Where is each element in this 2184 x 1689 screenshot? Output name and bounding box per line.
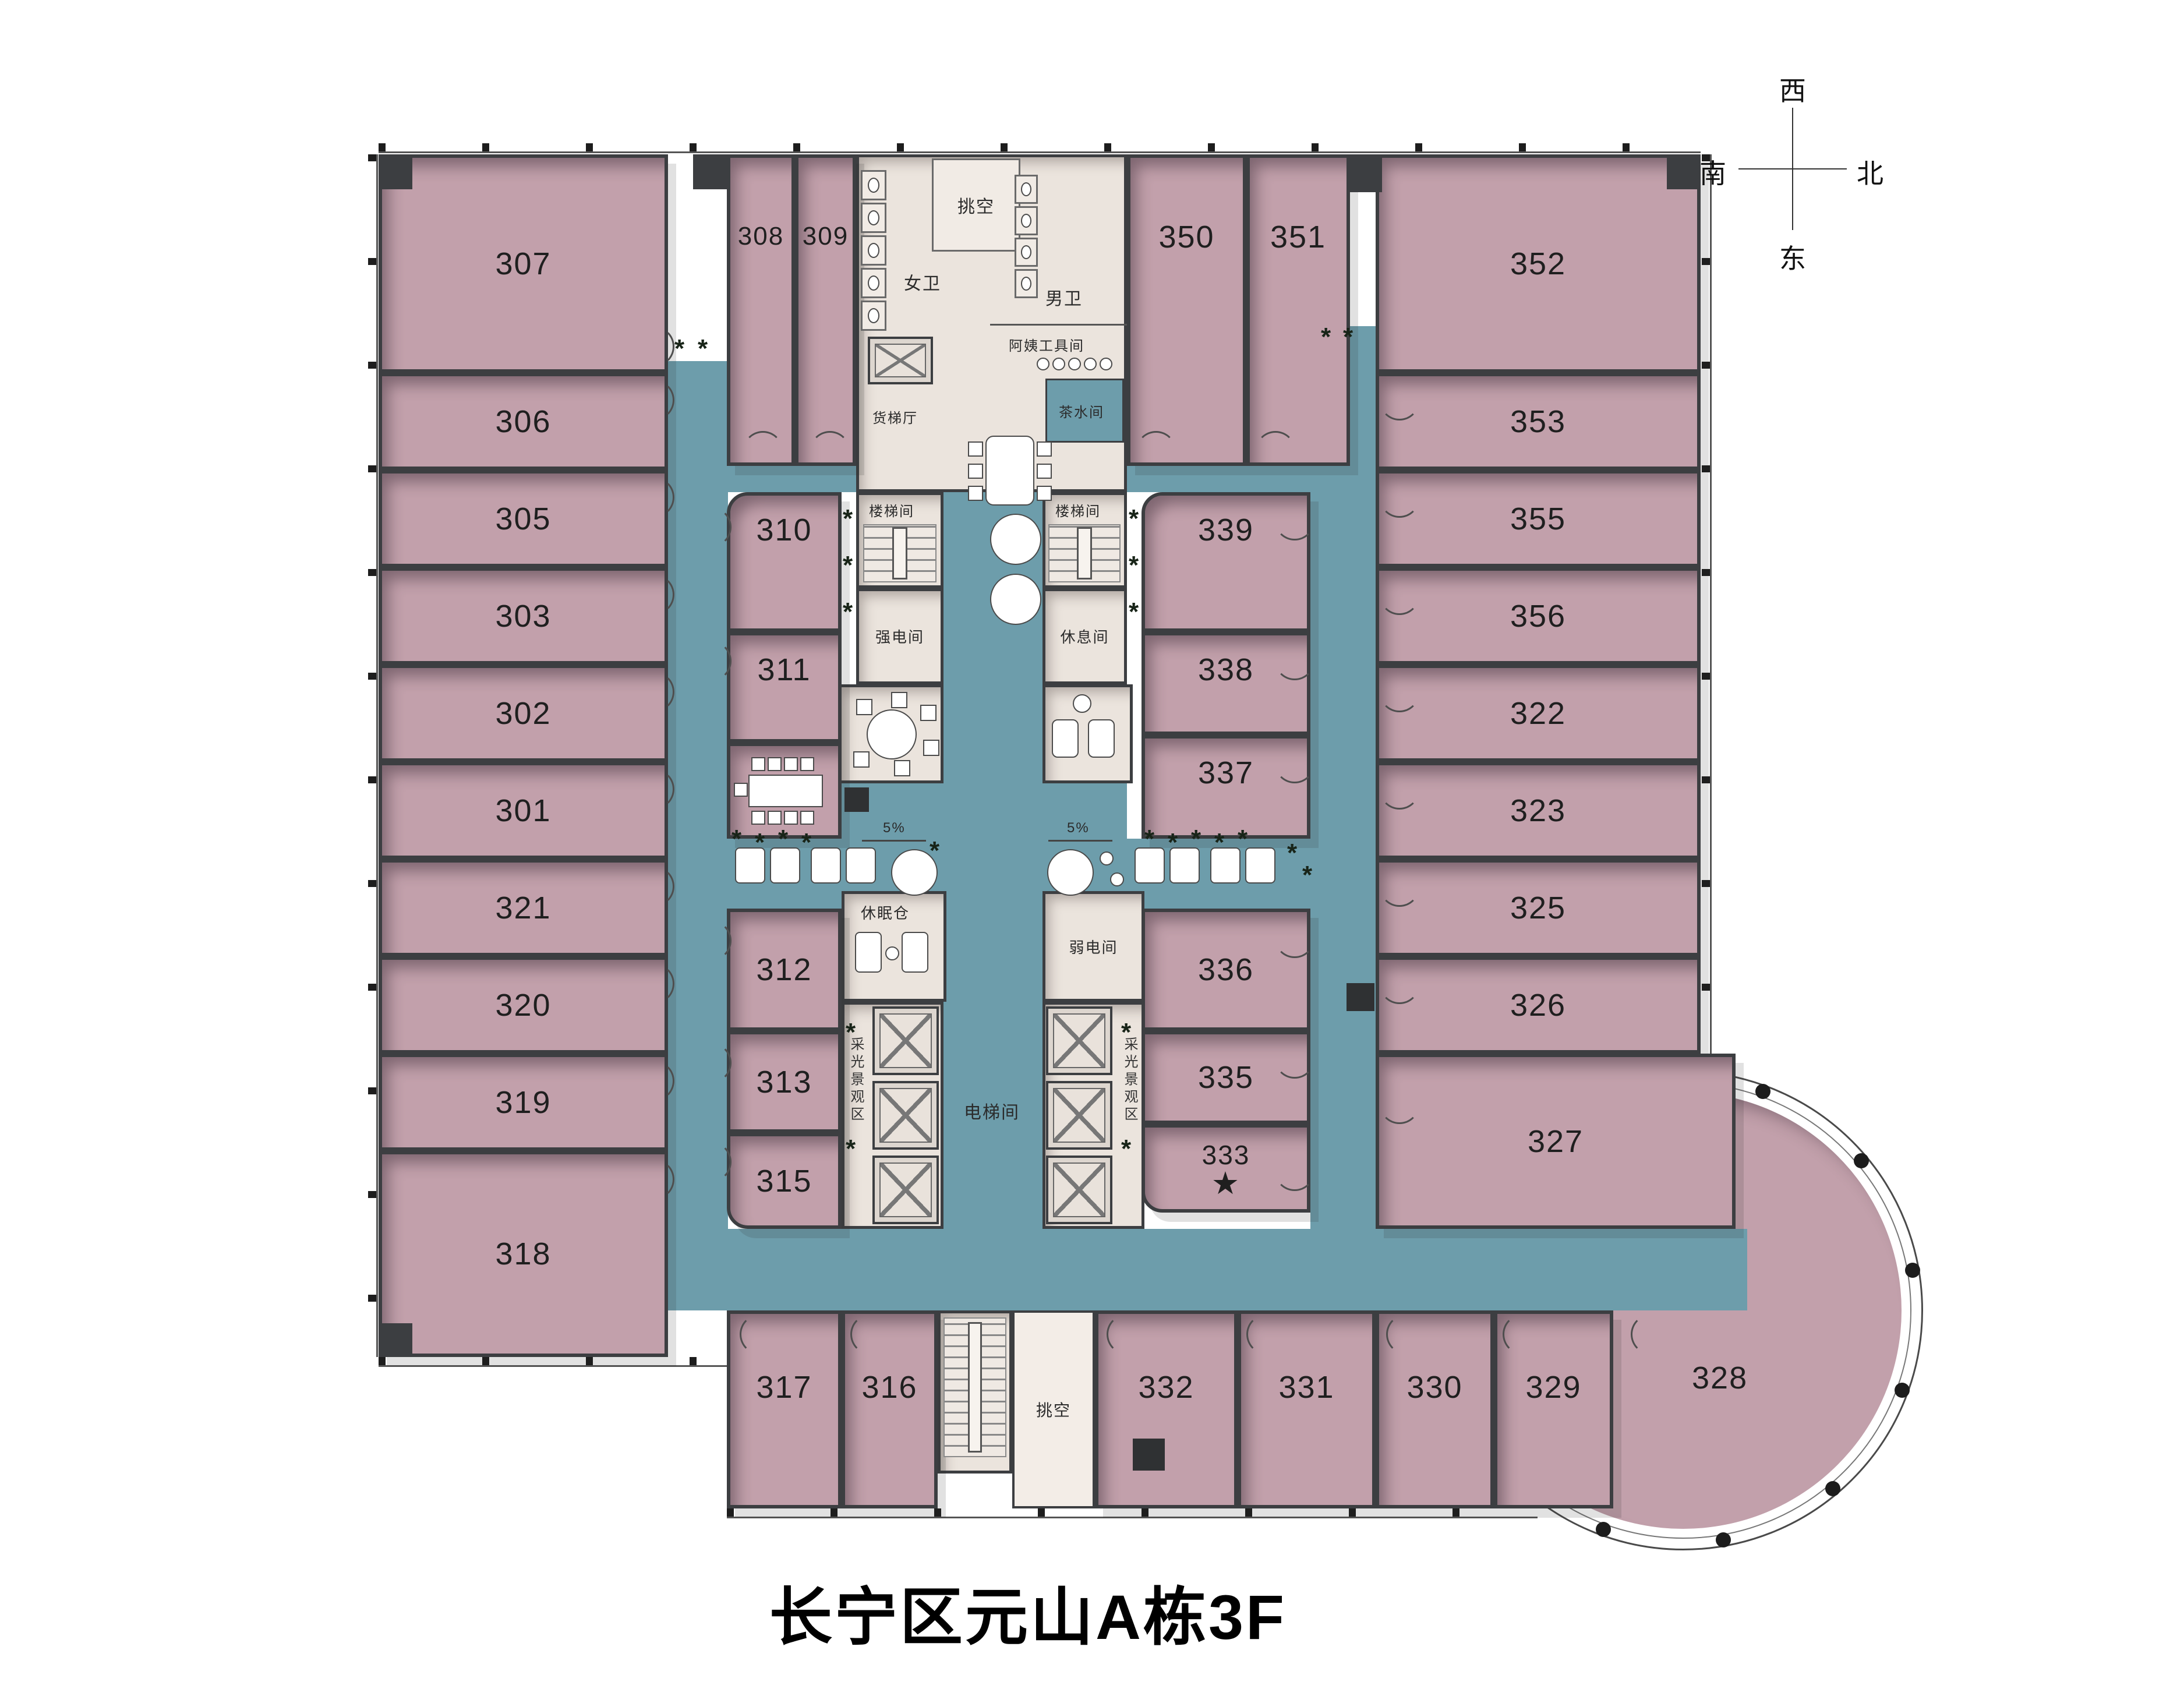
plant-icon: * (1321, 330, 1331, 345)
wc-stall (1015, 269, 1038, 298)
plant-icon: * (731, 832, 741, 847)
door (1274, 1038, 1315, 1079)
door (1274, 639, 1315, 680)
room-305: 305 (379, 470, 668, 567)
lounge-chair-icon (1052, 719, 1079, 758)
chair-icon (784, 757, 798, 771)
column-pier (379, 1323, 412, 1357)
round-table-icon (867, 709, 917, 759)
sink-icon (1037, 358, 1049, 370)
room-322: 322 (1376, 665, 1701, 762)
chair-icon (768, 757, 782, 771)
room-309: 309 (795, 154, 856, 466)
lounge-chair-icon (1088, 719, 1115, 758)
compass-south: 南 (1699, 153, 1726, 191)
door (1379, 477, 1420, 518)
wc-stall (1015, 175, 1038, 204)
freight-hall-label: 货梯厅 (872, 407, 918, 427)
strong-power-room: 强电间 (856, 588, 943, 684)
compass-east: 东 (1779, 238, 1806, 276)
plant-icon: * (843, 511, 853, 527)
door (634, 574, 674, 615)
door (691, 1043, 731, 1083)
chair-icon (800, 757, 814, 771)
door (1274, 917, 1315, 958)
room-323: 323 (1376, 762, 1701, 859)
lounge-room: 休息间 (1042, 588, 1127, 684)
room-308: 308 (727, 154, 795, 466)
stair-left-label: 楼梯间 (869, 500, 914, 520)
room-350: 350 (1127, 154, 1246, 466)
star-marker: ★ (1211, 1171, 1241, 1197)
room-352: 352 (1376, 154, 1701, 373)
column-pier (1667, 154, 1701, 189)
stair-rail (892, 527, 907, 580)
compass-west: 西 (1779, 70, 1806, 108)
plant-icon: * (1129, 511, 1139, 527)
wc-stall (1015, 238, 1038, 267)
wc-stall (1015, 206, 1038, 235)
corridor-notch-351 (1350, 326, 1376, 466)
chair-icon (923, 740, 939, 756)
floor-plan: 307 306 305 303 302 301 321 320 319 318 … (0, 0, 2184, 1689)
armchair-icon (846, 847, 876, 884)
plant-icon: * (674, 341, 684, 356)
door (1503, 1314, 1543, 1355)
side-table-icon (885, 946, 899, 960)
room-328-label: 328 (1692, 1360, 1748, 1396)
room-312: 312 (727, 909, 842, 1031)
plant-icon: * (846, 1142, 856, 1157)
door (1274, 743, 1315, 783)
stair-right-label: 楼梯间 (1055, 500, 1101, 520)
shaft (844, 787, 869, 812)
room-325: 325 (1376, 859, 1701, 956)
recliner-icon (855, 932, 882, 973)
plant-icon: * (1129, 605, 1139, 620)
chair-icon (968, 441, 983, 457)
daylight-right-label: 采光景观区 (1119, 1037, 1140, 1124)
ramp-right-label: 5% (1067, 820, 1090, 836)
elevator (872, 1081, 939, 1150)
chair-icon (894, 760, 910, 776)
chair-icon (734, 783, 748, 797)
room-301: 301 (379, 762, 668, 859)
chair-icon (768, 811, 782, 825)
plant-icon: * (843, 558, 853, 573)
plant-icon: * (1343, 330, 1353, 345)
sleep-pod-label: 休眠仓 (861, 902, 910, 923)
stool-icon (1110, 872, 1124, 886)
door (634, 769, 674, 810)
room-311: 311 (727, 632, 842, 743)
plant-icon: * (801, 835, 811, 850)
room-310: 310 (727, 492, 842, 632)
door (634, 866, 674, 907)
door (634, 963, 674, 1004)
ramp-left-label: 5% (883, 820, 906, 836)
elevator (872, 1006, 939, 1075)
chair-icon (751, 757, 765, 771)
room-303: 303 (379, 567, 668, 665)
conference-table-icon (748, 775, 823, 807)
wc-stall (861, 203, 886, 233)
door (691, 507, 731, 547)
room-306: 306 (379, 373, 668, 470)
plant-icon: * (843, 605, 853, 620)
facade-column (1854, 1153, 1869, 1168)
door (1379, 866, 1420, 907)
compass-north: 北 (1857, 153, 1883, 191)
curtain-wall-bottom-center (727, 1508, 1538, 1518)
room-327: 327 (1376, 1054, 1736, 1229)
door (691, 641, 731, 681)
door (1255, 431, 1296, 472)
door (1379, 672, 1420, 712)
wc-stall (861, 235, 886, 266)
plant-icon: * (1168, 835, 1178, 850)
column-pier (379, 154, 412, 189)
pantry-label: 茶水间 (1059, 401, 1104, 421)
room-302: 302 (379, 665, 668, 762)
compass-horizontal-line (1738, 168, 1847, 169)
sink-icon (1100, 358, 1112, 370)
shaft (1133, 1439, 1165, 1471)
door (1379, 769, 1420, 810)
plant-icon: * (1302, 868, 1312, 883)
room-315: 315 (727, 1133, 842, 1229)
door (1379, 1083, 1420, 1124)
stair-rail (1077, 527, 1092, 580)
door (1379, 574, 1420, 615)
chair-icon (1037, 464, 1052, 479)
chair-icon (751, 811, 765, 825)
chair-icon (856, 699, 872, 715)
page-title: 长宁区元山A栋3F (722, 1567, 1334, 1658)
plant-icon: * (698, 341, 708, 356)
plant-icon: * (1129, 558, 1139, 573)
door (850, 1314, 891, 1355)
room-318: 318 (379, 1151, 668, 1357)
door (743, 431, 783, 472)
chair-icon (784, 811, 798, 825)
plant-icon: * (755, 835, 765, 850)
armchair-icon (1245, 847, 1275, 884)
plant-icon: * (1121, 1142, 1131, 1157)
round-table-icon (990, 514, 1041, 565)
room-307: 307 (379, 154, 668, 373)
armchair-icon (811, 847, 841, 884)
door (691, 1142, 731, 1182)
door (1379, 380, 1420, 421)
sink-icon (1068, 358, 1081, 370)
round-table-icon (990, 574, 1041, 625)
plant-icon: * (1144, 832, 1154, 847)
plant-icon: * (1191, 832, 1201, 847)
plant-icon: * (1287, 846, 1297, 861)
cleaner-room-label: 阿姨工具间 (1009, 334, 1084, 355)
long-table-icon (985, 436, 1034, 506)
door (634, 326, 674, 367)
side-table-icon (1073, 694, 1091, 713)
curtain-wall-top (379, 143, 1701, 153)
room-351: 351 (1246, 154, 1350, 466)
door (634, 1061, 674, 1101)
wc-stall (861, 268, 886, 298)
door (1386, 1314, 1427, 1355)
room-326: 326 (1376, 956, 1701, 1054)
chair-icon (800, 811, 814, 825)
door (1274, 500, 1315, 540)
door (691, 920, 731, 961)
elevator (1046, 1081, 1112, 1150)
facade-column (1716, 1532, 1731, 1547)
plant-icon: * (930, 843, 939, 858)
room-313: 313 (727, 1031, 842, 1133)
room-356: 356 (1376, 567, 1701, 665)
shaft (1347, 983, 1374, 1011)
room-319: 319 (379, 1054, 668, 1151)
facade-column (1825, 1481, 1840, 1496)
chair-icon (1037, 486, 1052, 501)
ramp-right-line (1048, 840, 1112, 842)
elevator (1046, 1006, 1112, 1075)
freight-elevator (868, 337, 933, 384)
room-355: 355 (1376, 470, 1701, 567)
plant-icon: * (1214, 835, 1224, 850)
door (634, 477, 674, 518)
wc-stall (861, 301, 886, 331)
stair-rail (968, 1322, 982, 1453)
elevator (872, 1156, 939, 1224)
lift-lobby-label: 电梯间 (964, 1098, 1020, 1123)
weak-power-room: 弱电间 (1042, 891, 1144, 1002)
corridor-central-spine (943, 373, 1042, 1310)
sink-icon (1052, 358, 1065, 370)
curtain-wall-right (1702, 154, 1712, 1054)
corridor-right (1310, 349, 1376, 1310)
cleaner-room-wall (990, 324, 1127, 326)
plant-icon: * (778, 832, 788, 847)
sink-icon (1084, 358, 1097, 370)
door (1107, 1314, 1147, 1355)
elevator (1046, 1156, 1112, 1224)
round-table-icon (1047, 849, 1094, 896)
facade-column (1755, 1084, 1770, 1099)
plant-icon: * (1238, 832, 1248, 847)
chair-icon (1037, 441, 1052, 457)
daylight-left-label: 采光景观区 (846, 1037, 866, 1124)
column-pier (693, 154, 727, 189)
facade-column (1905, 1263, 1920, 1278)
recliner-icon (902, 932, 928, 973)
door (634, 380, 674, 421)
curtain-wall-left (368, 154, 378, 1357)
corridor-bottom-band (668, 1229, 1747, 1310)
chair-icon (853, 751, 870, 768)
door (634, 672, 674, 712)
room-321: 321 (379, 859, 668, 956)
room-320: 320 (379, 956, 668, 1054)
curtain-wall-bottom-left (379, 1357, 727, 1367)
chair-icon (968, 486, 983, 501)
chair-icon (920, 705, 936, 721)
chair-icon (968, 464, 983, 479)
facade-column (1596, 1522, 1611, 1537)
chair-icon (891, 692, 907, 708)
door (1631, 1314, 1671, 1355)
door (1136, 431, 1176, 472)
stool-icon (1100, 851, 1114, 865)
door (1379, 963, 1420, 1004)
door (740, 1314, 780, 1355)
womens-wc-label: 女卫 (904, 269, 941, 295)
void-room-top: 挑空 (932, 158, 1020, 252)
door (1246, 1314, 1287, 1355)
room-353: 353 (1376, 373, 1701, 470)
mens-wc-label: 男卫 (1045, 284, 1083, 310)
ramp-left-line (862, 840, 926, 842)
void-room-bottom: 挑空 (1012, 1310, 1095, 1508)
column-pier (1350, 154, 1382, 192)
door (810, 431, 850, 472)
wc-stall (861, 170, 886, 200)
door (634, 1159, 674, 1200)
facade-column (1895, 1383, 1910, 1398)
door (1274, 1150, 1315, 1191)
